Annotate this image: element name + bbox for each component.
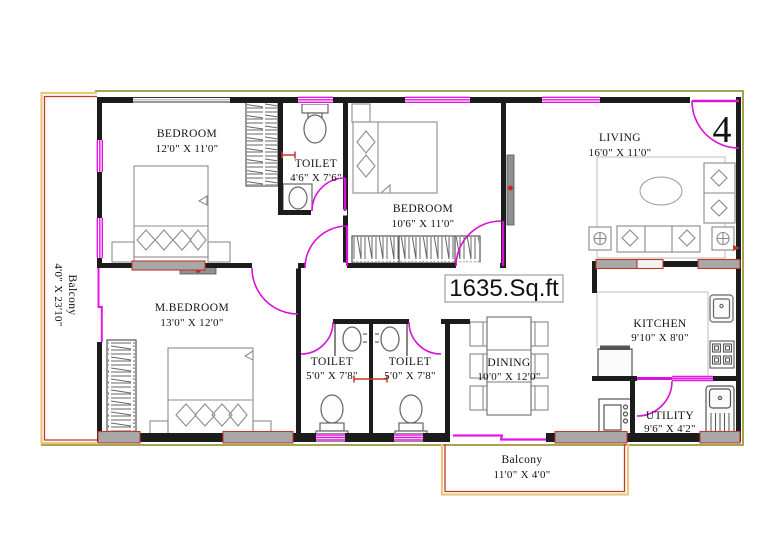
total-area-box: 1635.Sq.ft: [445, 275, 563, 302]
room-label-toilet1: TOILET: [311, 356, 353, 368]
room-label-balcony-left: Balcony: [66, 274, 78, 315]
total-area-label: 1635.Sq.ft: [449, 275, 559, 302]
room-label-balcony-bottom: Balcony: [501, 454, 542, 466]
living-loveseat: [704, 163, 735, 223]
toilet2-door-arc: [409, 322, 441, 354]
living-sofa: [617, 226, 700, 252]
master-door-arc: [252, 268, 298, 314]
tv-unit: [507, 155, 514, 225]
room-label-kitchen: KITCHEN: [633, 318, 687, 330]
bedroom2-double-bed: [352, 104, 437, 193]
room-label-bedroom1: BEDROOM: [157, 128, 217, 140]
window: [672, 376, 713, 382]
sliding-door: [450, 433, 546, 442]
toilet-top-washbasin: [279, 184, 312, 212]
room-dims-master: 13'0" X 12'0": [160, 317, 223, 329]
toilet2-wc: [395, 395, 427, 435]
room-dims-toilet2: 5'0" X 7'8": [384, 370, 436, 382]
room-dims-balcony-left: 4'0" X 23'10": [52, 263, 64, 326]
stove-icon: [710, 341, 734, 368]
room-dims-dining: 10'0" X 12'0": [477, 371, 540, 383]
room-dims-toilet-top: 4'6" X 7'6": [290, 172, 342, 184]
bedroom2-wardrobe: [352, 236, 480, 263]
utility-sink: [706, 386, 734, 436]
room-label-bedroom2: BEDROOM: [393, 203, 453, 215]
balcony-left-outline: [42, 93, 98, 443]
room-dims-bedroom2: 10'6" X 11'0": [392, 218, 455, 230]
fridge-icon: [598, 346, 632, 380]
room-label-master: M.BEDROOM: [155, 302, 229, 314]
kitchen-sink: [710, 295, 733, 322]
room-label-living: LIVING: [599, 132, 641, 144]
balcony-left-label: Balcony 4'0" X 23'10": [52, 263, 78, 326]
room-dims-toilet1: 5'0" X 7'8": [306, 370, 358, 382]
window-frame: [133, 96, 230, 104]
room-dims-utility: 9'6" X 4'2": [644, 423, 696, 435]
room-label-dining: DINING: [487, 357, 530, 369]
room-label-toilet-top: TOILET: [295, 158, 337, 170]
floor-plan: BEDROOM 12'0" X 11'0" TOILET 4'6" X 7'6"…: [0, 0, 783, 555]
room-dims-kitchen: 9'10" X 8'0": [631, 332, 689, 344]
toilet1-door-arc: [301, 322, 333, 354]
room-dims-balcony-bottom: 11'0" X 4'0": [493, 469, 550, 481]
bedroom1-double-bed: [112, 166, 230, 262]
sliding-door: [96, 268, 103, 342]
bedroom1-wardrobe: [246, 102, 278, 186]
master-double-bed: [150, 348, 271, 440]
toilet1-wc: [316, 395, 348, 435]
room-dims-bedroom1: 12'0" X 11'0": [156, 143, 219, 155]
room-label-utility: UTILITY: [646, 410, 694, 422]
floor-plan-drawing: BEDROOM 12'0" X 11'0" TOILET 4'6" X 7'6"…: [0, 0, 783, 555]
unit-number: 4: [713, 109, 732, 151]
toilet-top-wc: [302, 104, 328, 143]
room-label-toilet2: TOILET: [389, 356, 431, 368]
master-wardrobe: [107, 340, 136, 434]
bedroom1-door-arc: [305, 226, 347, 268]
washing-machine-icon: [599, 399, 631, 436]
room-dims-living: 16'0" X 11'0": [589, 147, 652, 159]
